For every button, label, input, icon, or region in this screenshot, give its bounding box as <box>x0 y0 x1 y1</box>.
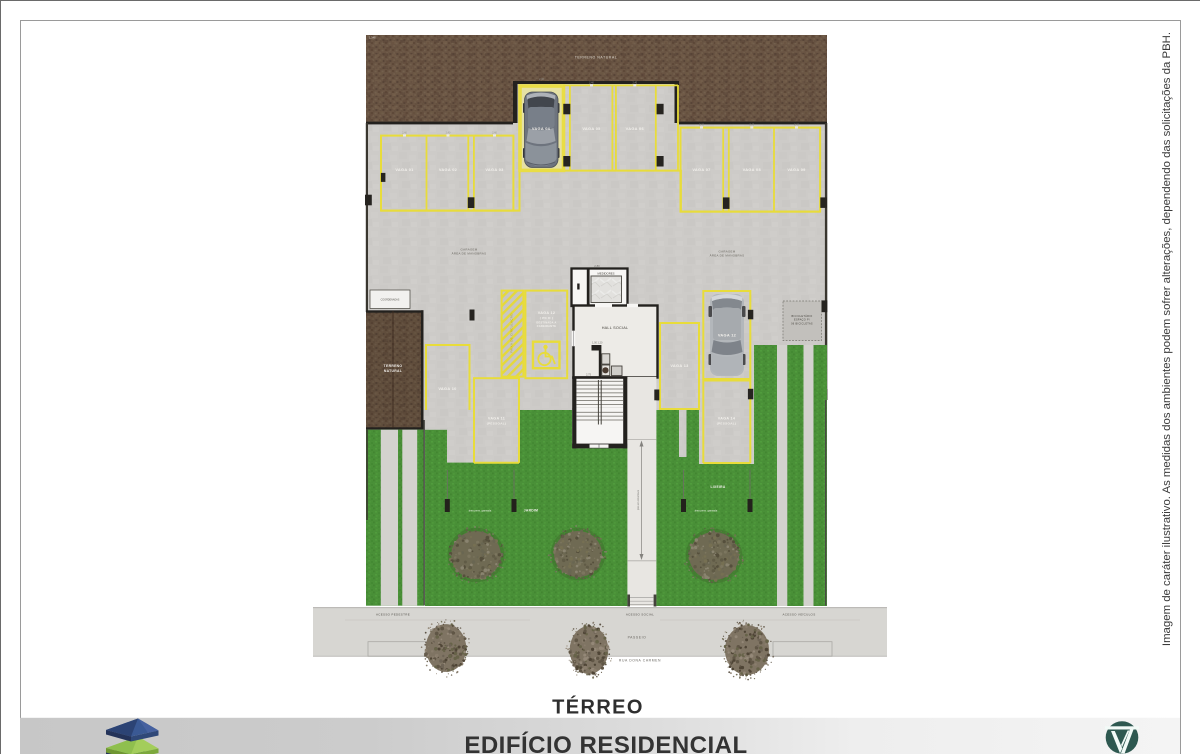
svg-text:VAGA 13: VAGA 13 <box>670 363 689 368</box>
svg-text:ÁREA DE MANOBRAS: ÁREA DE MANOBRAS <box>710 254 745 258</box>
svg-text:VAGA 07: VAGA 07 <box>692 167 710 172</box>
svg-text:VAGA 11: VAGA 11 <box>488 417 505 421</box>
svg-text:ACESSO VEÍCULOS: ACESSO VEÍCULOS <box>782 613 815 617</box>
svg-text:ACESSO PEDESTRE: ACESSO PEDESTRE <box>376 613 410 617</box>
svg-text:2,40: 2,40 <box>699 123 704 126</box>
svg-text:EDIFÍCIO RESIDENCIAL: EDIFÍCIO RESIDENCIAL <box>464 731 747 754</box>
svg-text:área perm. gramada: área perm. gramada <box>695 510 718 513</box>
svg-text:(PESSOAL): (PESSOAL) <box>717 422 737 426</box>
svg-text:VAGA 12: VAGA 12 <box>718 333 737 338</box>
svg-text:VAGA 02: VAGA 02 <box>439 167 458 172</box>
svg-text:ESPAÇO P/: ESPAÇO P/ <box>794 319 810 322</box>
svg-text:piso em cimentado: piso em cimentado <box>637 489 640 510</box>
svg-text:VAGA 08: VAGA 08 <box>743 167 762 172</box>
svg-text:PASSEIO: PASSEIO <box>628 636 647 640</box>
svg-text:06 BICICLETAS: 06 BICICLETAS <box>791 322 813 325</box>
svg-text:(PESSOAL): (PESSOAL) <box>487 422 507 426</box>
svg-text:ACESSO SOCIAL: ACESSO SOCIAL <box>626 613 654 617</box>
svg-text:VAGA 06: VAGA 06 <box>626 126 645 131</box>
svg-text:LIXEIRA: LIXEIRA <box>710 485 725 489</box>
svg-text:FAIXA DE CIRCULAÇÃO: FAIXA DE CIRCULAÇÃO <box>509 313 514 353</box>
svg-text:VAGA 01: VAGA 01 <box>395 167 414 172</box>
svg-text:VAGA 10: VAGA 10 <box>438 386 456 391</box>
svg-text:RUA DONA CARMEN: RUA DONA CARMEN <box>619 659 661 663</box>
svg-text:2,80: 2,80 <box>594 264 600 268</box>
svg-text:TERRENO NATURAL: TERRENO NATURAL <box>575 56 618 60</box>
svg-text:ÁREA DE MANOBRAS: ÁREA DE MANOBRAS <box>452 252 487 256</box>
svg-text:Imagem de caráter ilustrativo.: Imagem de caráter ilustrativo. As medida… <box>1161 32 1173 646</box>
svg-text:NATURAL: NATURAL <box>384 369 402 373</box>
svg-text:VAGA 14: VAGA 14 <box>718 417 736 421</box>
svg-text:2,40: 2,40 <box>632 81 637 84</box>
svg-text:2,40: 2,40 <box>492 131 497 134</box>
svg-text:VAGA 03: VAGA 03 <box>485 167 504 172</box>
svg-text:( PC D ): ( PC D ) <box>540 316 554 320</box>
svg-text:2,40: 2,40 <box>446 131 451 134</box>
svg-text:MEDIDORES: MEDIDORES <box>598 272 615 276</box>
svg-text:2,40: 2,40 <box>402 131 407 134</box>
svg-text:2,40: 2,40 <box>539 78 544 81</box>
svg-text:BICICLETÁRIO: BICICLETÁRIO <box>792 315 813 318</box>
svg-text:TERRENO: TERRENO <box>384 364 403 368</box>
svg-text:2,40: 2,40 <box>749 123 754 126</box>
svg-text:1,00 1,20: 1,00 1,20 <box>592 342 603 345</box>
svg-text:VAGA 05: VAGA 05 <box>582 126 601 131</box>
svg-text:área perm. gramada: área perm. gramada <box>469 510 492 513</box>
svg-text:VAGA 09: VAGA 09 <box>787 167 806 172</box>
svg-text:2,40: 2,40 <box>589 81 594 84</box>
svg-text:VAGA 04: VAGA 04 <box>532 126 551 131</box>
svg-text:VAGA 12: VAGA 12 <box>538 311 555 315</box>
svg-text:2,75: 2,75 <box>586 372 592 376</box>
svg-text:TÉRREO: TÉRREO <box>552 696 644 719</box>
svg-text:1,348: 1,348 <box>369 36 376 40</box>
svg-text:2,40: 2,40 <box>794 123 799 126</box>
svg-text:COORDENADAS: COORDENADAS <box>381 298 400 301</box>
svg-text:HALL SOCIAL: HALL SOCIAL <box>602 326 629 330</box>
svg-text:CADEIRANTE: CADEIRANTE <box>537 325 556 328</box>
svg-text:JARDIM: JARDIM <box>524 509 538 513</box>
